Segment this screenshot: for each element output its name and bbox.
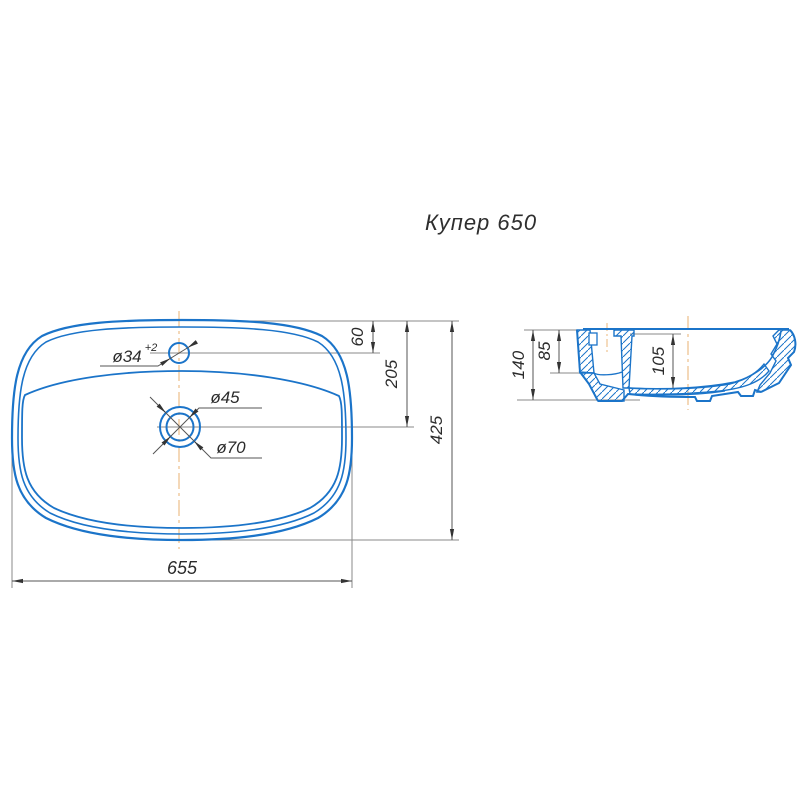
- dim-text-width: 655: [167, 558, 198, 578]
- dim-text-faucet-diameter: ø34: [112, 347, 141, 366]
- side-view: 140 85 105: [509, 316, 795, 410]
- technical-drawing-svg: 655 60 205 425 ø34 +2 ø45 ø70: [0, 0, 800, 800]
- section-channel-right-wall: [614, 330, 634, 388]
- channel-bottom-edge: [594, 372, 622, 375]
- basin-bowl-edge: [22, 371, 342, 528]
- dim-text-drain-offset: 205: [382, 359, 401, 389]
- dim-text-faucet-tolerance: +2: [145, 342, 158, 354]
- drawing-title: Купер 650: [425, 210, 585, 236]
- overflow-clip: [589, 333, 597, 345]
- dim-text-bowl-depth: 105: [649, 346, 668, 375]
- top-view: 655 60 205 425 ø34 +2 ø45 ø70: [12, 311, 459, 588]
- dim-text-channel-depth: 85: [535, 341, 554, 360]
- sink-inner-rim: [18, 327, 346, 534]
- dim-text-drain-outer: ø70: [216, 438, 246, 457]
- dim-text-overall-height: 140: [509, 350, 528, 379]
- drawing-canvas: Купер 650: [0, 0, 800, 800]
- dim-text-height: 425: [427, 415, 446, 444]
- section-left-foot: [580, 372, 624, 401]
- dim-text-faucet-offset: 60: [348, 327, 367, 346]
- dim-text-drain-inner: ø45: [210, 388, 240, 407]
